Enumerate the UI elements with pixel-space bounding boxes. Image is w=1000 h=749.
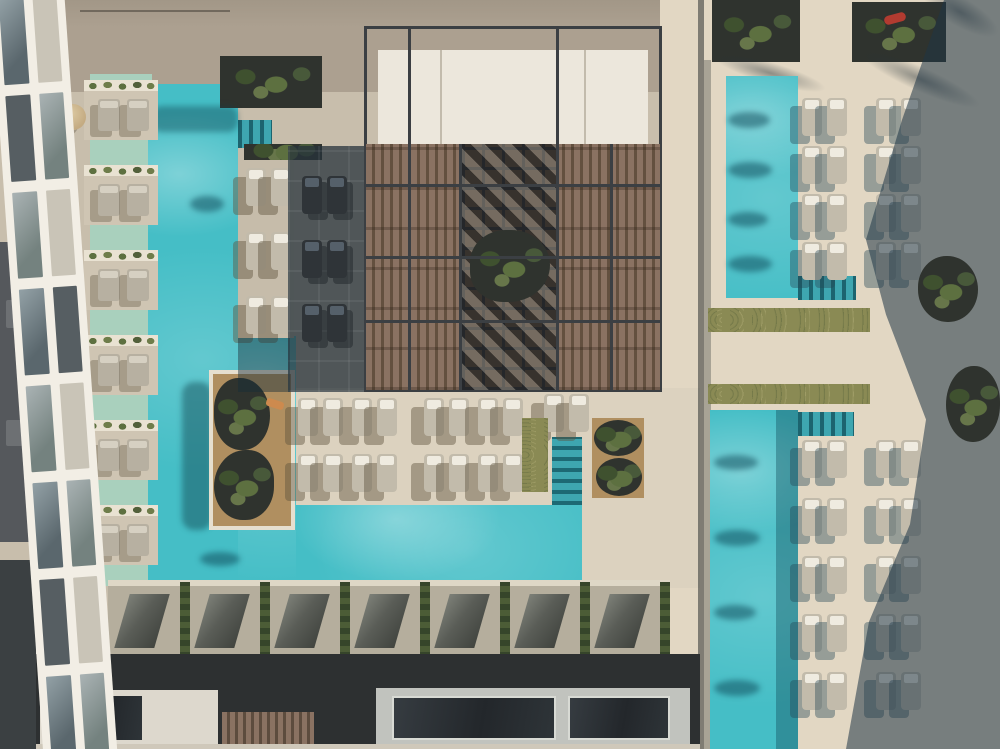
lounger-shadow-on-pool [728, 212, 768, 227]
sun-lounger [569, 394, 589, 432]
pergola-beam [408, 26, 411, 392]
sun-lounger [802, 98, 822, 136]
lounger-pair [424, 398, 469, 436]
sun-lounger [246, 296, 266, 334]
pier-planter [84, 165, 158, 176]
daybed-mat [98, 354, 120, 386]
sun-lounger [876, 498, 896, 536]
sun-lounger [377, 454, 397, 492]
swimmer-shadow [200, 552, 240, 566]
sun-lounger [323, 398, 343, 436]
terrace-glass-door [354, 594, 409, 648]
swim-up-terrace [192, 588, 258, 654]
pier-planter [84, 335, 158, 346]
pergola-beam [610, 144, 613, 392]
cabana-pier [84, 335, 158, 395]
sun-lounger [827, 614, 847, 652]
swim-up-terrace [592, 588, 658, 654]
sun-lounger [503, 454, 523, 492]
lounger-pair [802, 194, 847, 232]
lounger-pair [544, 394, 589, 432]
daybed-mat [127, 354, 149, 386]
terrace-glass-door [514, 594, 569, 648]
pier-planter [84, 250, 158, 261]
terrace-glass-door [114, 594, 169, 648]
sun-lounger [827, 146, 847, 184]
sun-lounger [802, 440, 822, 478]
sun-lounger [802, 242, 822, 280]
daybed-mat [127, 99, 149, 131]
sun-lounger [327, 176, 347, 214]
balcony-terrace [52, 286, 82, 373]
sun-lounger [827, 498, 847, 536]
sun-lounger [802, 556, 822, 594]
lounger-pair [876, 440, 921, 478]
planter-shadow-on-pool [152, 106, 238, 132]
pool-top-planter [220, 56, 322, 108]
shaded-lounger-pair [302, 176, 347, 214]
sun-lounger [802, 498, 822, 536]
tree-shadow-on-pool [182, 382, 212, 530]
pergola-shadow-on-pool [238, 338, 290, 392]
lounger-pair [802, 242, 847, 280]
lounger-pair [352, 454, 397, 492]
lounger-pair [298, 454, 343, 492]
pergola-slats-east [556, 144, 660, 390]
lap-pool-south-deep-edge [776, 410, 798, 749]
lounger-pair [802, 498, 847, 536]
lounger-pair [246, 232, 291, 270]
balcony-glass [5, 94, 35, 181]
pergola-beam [459, 144, 462, 392]
sun-lounger [802, 614, 822, 652]
pergola-beam [556, 26, 559, 392]
cabana-pier [84, 250, 158, 310]
balcony-terrace [79, 673, 109, 749]
sun-lounger [327, 304, 347, 342]
sun-lounger [827, 194, 847, 232]
roof-glass-skylight [568, 696, 670, 740]
lounger-shadow-on-pool [714, 530, 760, 546]
lounger-shadow-on-pool [728, 112, 770, 128]
swim-up-terrace [512, 588, 578, 654]
sun-lounger [424, 398, 444, 436]
sun-lounger [503, 398, 523, 436]
pool-steps-southeast [552, 437, 582, 505]
planter-bush [594, 420, 642, 456]
lounger-pair [802, 614, 847, 652]
daybed-mat [98, 439, 120, 471]
sun-lounger [876, 98, 896, 136]
lounger-pair [478, 398, 523, 436]
balcony-glass [26, 385, 56, 472]
balcony-glass [12, 191, 42, 278]
sun-lounger [352, 398, 372, 436]
sun-lounger [424, 454, 444, 492]
sun-lounger [449, 398, 469, 436]
sun-lounger [302, 240, 322, 278]
lounger-shadow-on-pool [728, 256, 772, 272]
sun-lounger [298, 454, 318, 492]
daybed-mat [98, 99, 120, 131]
swim-up-terrace [112, 588, 178, 654]
sun-lounger [352, 454, 372, 492]
deck-seam-line [80, 10, 230, 12]
sun-lounger [827, 672, 847, 710]
lounger-pair [424, 454, 469, 492]
sun-lounger [827, 440, 847, 478]
alley-dark-gap [0, 560, 36, 749]
sun-lounger [876, 440, 896, 478]
island-tree [214, 450, 274, 520]
lounger-pair [802, 556, 847, 594]
lap-pool-south-steps [798, 412, 854, 436]
balcony-terrace [32, 0, 62, 83]
sun-lounger [323, 454, 343, 492]
lounger-pair [298, 398, 343, 436]
sun-lounger [377, 398, 397, 436]
lounger-shadow-on-pool [714, 680, 760, 696]
lounger-pair [802, 98, 847, 136]
pier-planter [84, 80, 158, 91]
shaded-lounger-pair [302, 240, 347, 278]
lounger-shadow-on-pool [728, 162, 772, 178]
swimmer-shadow [190, 196, 224, 212]
sun-lounger [246, 232, 266, 270]
sun-lounger [478, 398, 498, 436]
grass-planter-strip [708, 384, 870, 404]
terrace-glass-door [274, 594, 329, 648]
balcony-terrace [73, 576, 103, 663]
lounger-pair [478, 454, 523, 492]
lounger-shadow-on-pool [714, 455, 758, 470]
shaded-tree [946, 366, 1000, 442]
daybed-mat [127, 269, 149, 301]
sun-lounger [802, 146, 822, 184]
balcony-glass [0, 0, 29, 85]
daybed-mat [98, 184, 120, 216]
balcony-terrace [39, 92, 69, 179]
shaded-lounger-pair [302, 304, 347, 342]
swim-up-terrace [352, 588, 418, 654]
sun-lounger [827, 242, 847, 280]
terrace-glass-door [594, 594, 649, 648]
sun-lounger [327, 240, 347, 278]
roof-glass-skylight [392, 696, 556, 740]
balcony-glass [39, 578, 69, 665]
sun-lounger [802, 672, 822, 710]
sun-lounger [827, 98, 847, 136]
grass-planter-west-of-steps [522, 418, 548, 492]
lounger-shadow-on-pool [714, 605, 756, 620]
sun-lounger [802, 194, 822, 232]
lounger-pair [246, 296, 291, 334]
terrace-glass-door [434, 594, 489, 648]
pier-planter [84, 420, 158, 431]
aerial-resort-photo [0, 0, 1000, 749]
sun-lounger [478, 454, 498, 492]
sun-lounger [302, 176, 322, 214]
ground-wall-strip [36, 744, 700, 749]
sun-lounger [298, 398, 318, 436]
main-pool-bottom-arm [296, 505, 582, 584]
sun-lounger [246, 168, 266, 206]
planter-bush [596, 458, 642, 496]
daybed-mat [127, 524, 149, 556]
shaded-tree [918, 256, 978, 322]
balcony-glass [19, 288, 49, 375]
balcony-glass [32, 482, 62, 569]
canopy-section [442, 50, 586, 146]
swim-up-terrace [272, 588, 338, 654]
balcony-glass [46, 675, 76, 749]
cabana-pier [84, 80, 158, 140]
terrace-glass-door [194, 594, 249, 648]
lounger-pair [352, 398, 397, 436]
sun-lounger [827, 556, 847, 594]
daybed-mat [127, 184, 149, 216]
pergola-canopy-roof [378, 50, 648, 146]
grass-planter-strip [708, 308, 870, 332]
daybed-mat [98, 269, 120, 301]
lounger-pair [246, 168, 291, 206]
lounger-pair [802, 440, 847, 478]
canopy-section [586, 50, 648, 146]
balcony-terrace [59, 382, 89, 469]
sun-lounger [302, 304, 322, 342]
lounger-pair [802, 672, 847, 710]
lounger-pair [802, 146, 847, 184]
balcony-terrace [45, 189, 75, 276]
sun-lounger [449, 454, 469, 492]
balcony-terrace [66, 479, 96, 566]
pergola-slats-west [366, 144, 462, 390]
cabana-pier [84, 165, 158, 225]
daybed-mat [127, 439, 149, 471]
swim-up-terrace [432, 588, 498, 654]
